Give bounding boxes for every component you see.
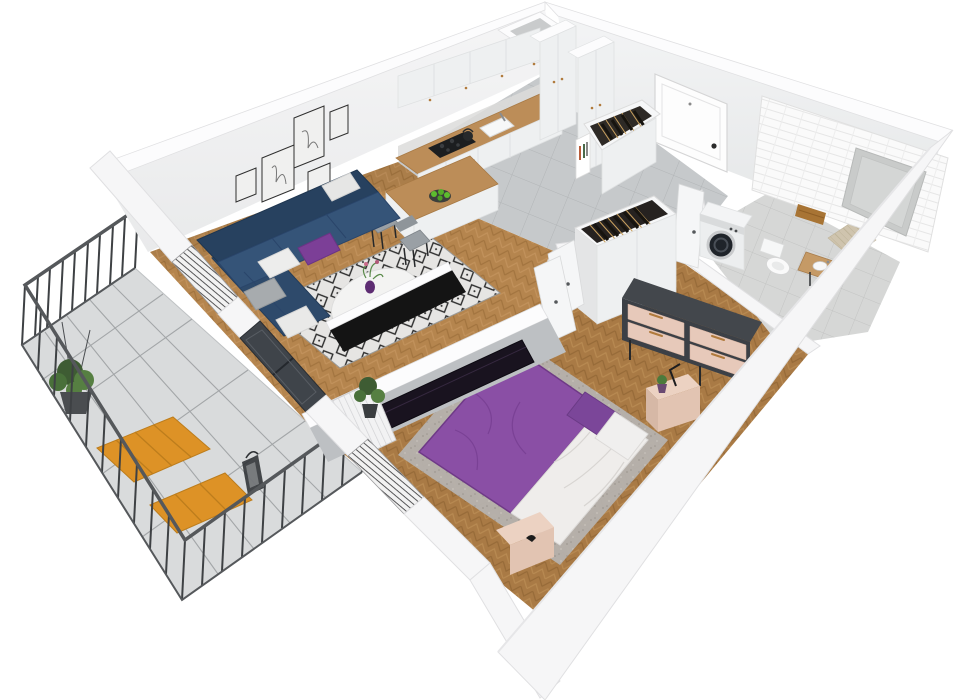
- floorplan-render-svg: 3D isometric cut-away floor plan render …: [0, 0, 958, 700]
- door-handle: [711, 143, 716, 148]
- nightstand-plant: [657, 375, 667, 385]
- bathroom-door: [673, 184, 704, 268]
- door-peephole: [689, 103, 692, 106]
- washer-door: [708, 232, 734, 258]
- book-nook: [576, 133, 590, 179]
- apartment-3d-floorplan: 3D isometric cut-away floor plan render …: [0, 0, 958, 700]
